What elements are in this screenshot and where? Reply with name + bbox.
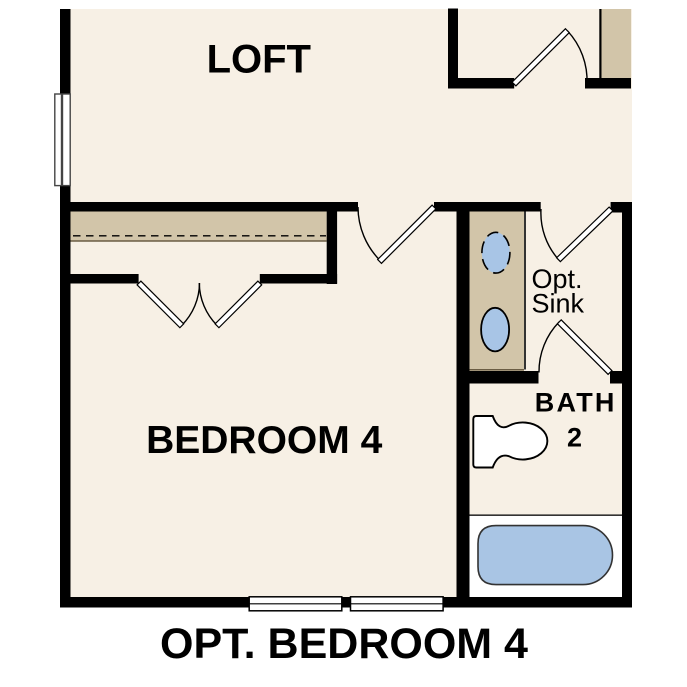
svg-text:Sink: Sink xyxy=(532,289,585,319)
svg-text:OPT. BEDROOM 4: OPT. BEDROOM 4 xyxy=(160,620,528,668)
svg-text:2: 2 xyxy=(567,423,582,453)
svg-text:BATH: BATH xyxy=(535,387,617,417)
svg-text:LOFT: LOFT xyxy=(207,38,311,82)
svg-text:BEDROOM 4: BEDROOM 4 xyxy=(146,419,383,462)
